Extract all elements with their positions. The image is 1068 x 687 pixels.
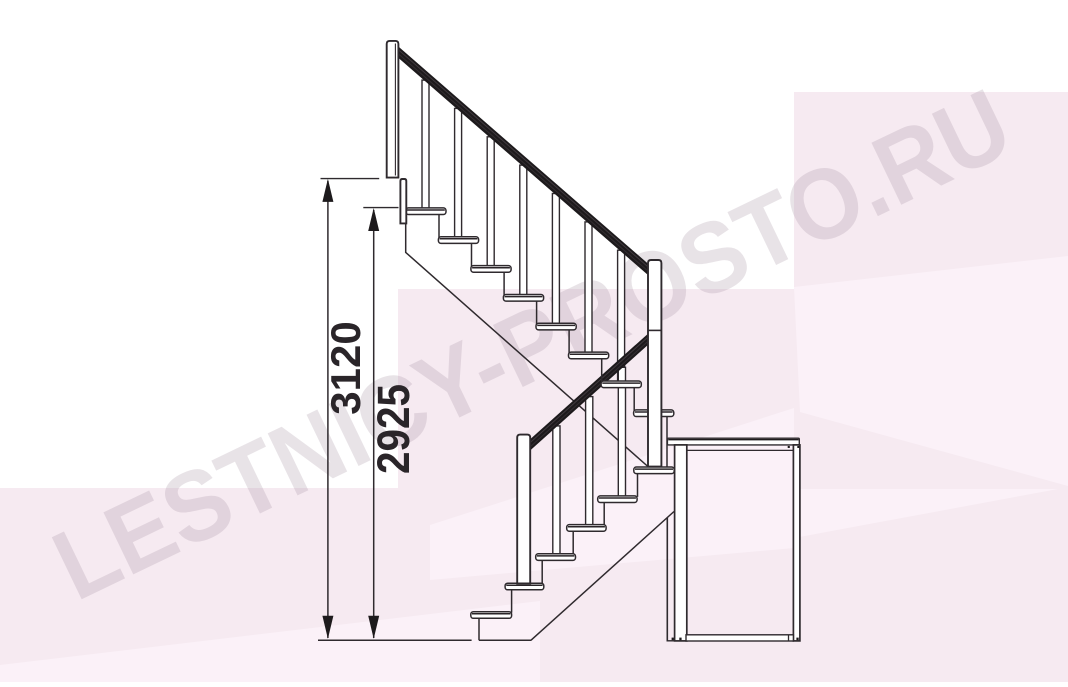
svg-text:3120: 3120 — [322, 321, 369, 414]
svg-text:2925: 2925 — [368, 384, 419, 474]
